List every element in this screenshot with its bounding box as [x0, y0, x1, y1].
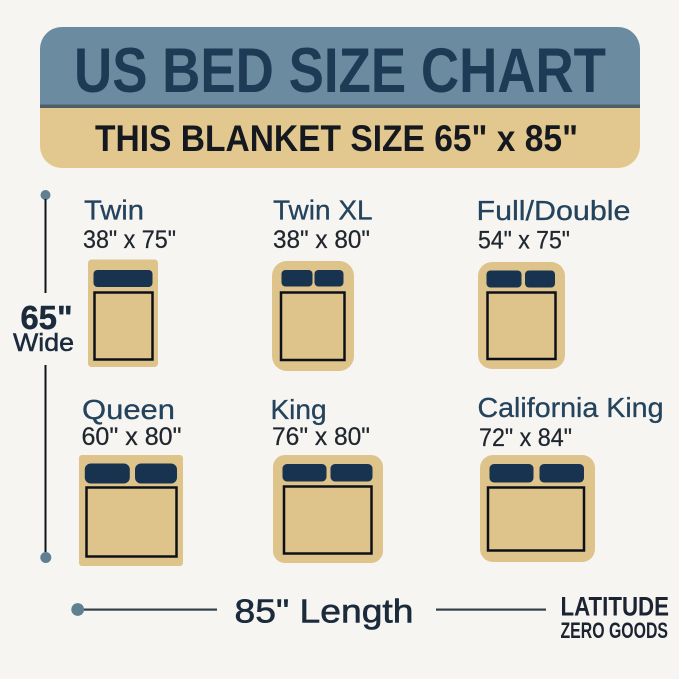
svg-text:ZERO GOODS: ZERO GOODS [561, 618, 669, 643]
svg-text:California King: California King [478, 392, 664, 423]
svg-text:60" x 80": 60" x 80" [82, 423, 182, 451]
svg-text:54" x 75": 54" x 75" [478, 227, 570, 255]
svg-text:38" x 75": 38" x 75" [83, 226, 176, 254]
svg-text:King: King [271, 394, 327, 425]
svg-text:Full/Double: Full/Double [477, 195, 631, 226]
svg-text:Queen: Queen [82, 394, 175, 425]
svg-text:Twin XL: Twin XL [273, 195, 373, 226]
svg-text:38" x 80": 38" x 80" [273, 226, 370, 254]
svg-text:76" x 80": 76" x 80" [272, 423, 370, 451]
svg-text:Twin: Twin [84, 195, 144, 226]
svg-text:THIS BLANKET SIZE 65" x 85": THIS BLANKET SIZE 65" x 85" [95, 118, 578, 159]
svg-text:Wide: Wide [13, 329, 74, 357]
svg-text:72" x 84": 72" x 84" [479, 424, 572, 452]
svg-text:85" Length: 85" Length [235, 593, 414, 630]
svg-text:LATITUDE: LATITUDE [561, 592, 670, 622]
svg-text:US BED SIZE CHART: US BED SIZE CHART [74, 36, 606, 106]
